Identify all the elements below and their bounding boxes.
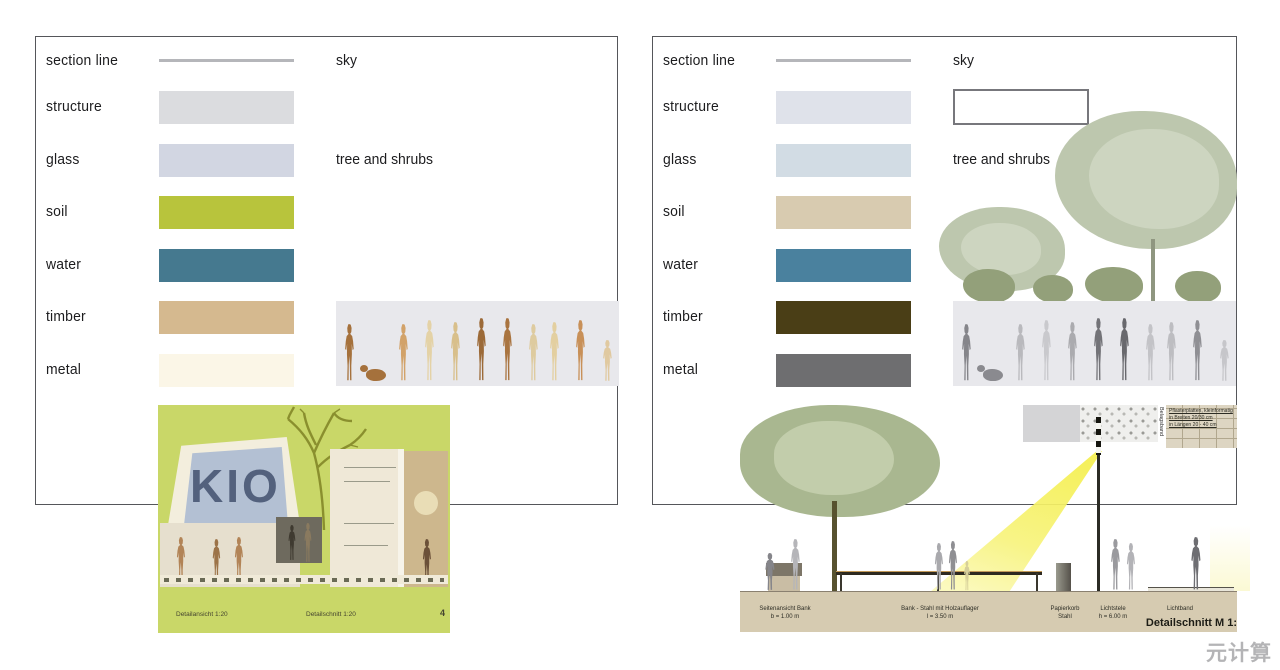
tree-canopy-light: [774, 421, 894, 495]
person-silhouette: [448, 322, 463, 382]
shrub: [1033, 275, 1073, 303]
legend-label-glass: glass: [663, 151, 697, 168]
person-silhouette: [342, 324, 357, 382]
legend-label-structure: structure: [663, 98, 719, 115]
bench-leg: [1036, 573, 1038, 591]
paving-note: Pflasterplatten, kleinformatig in Breite…: [1166, 405, 1237, 448]
paving-note-line: Pflasterplatten, kleinformatig: [1169, 408, 1230, 415]
legend-swatch-glass: [776, 144, 911, 177]
people-silhouettes-strip: [336, 301, 619, 386]
legend-label-water: water: [46, 256, 81, 273]
annotation-line: [344, 481, 390, 482]
page: section linestructureglasssoilwatertimbe…: [0, 0, 1280, 670]
legend-label-soil: soil: [663, 203, 685, 220]
legend-swatch-metal: [776, 354, 911, 387]
drawing-caption: Detailansicht 1:20: [176, 611, 228, 618]
legend-swatch-soil: [159, 196, 294, 229]
person-silhouette: [1190, 320, 1205, 382]
person-silhouette: [573, 320, 588, 382]
light-glow: [1210, 525, 1250, 591]
bench-side-base: [768, 576, 800, 591]
light-pole-stripes: [1096, 417, 1101, 455]
legend-swatch-structure: [159, 91, 294, 124]
person-silhouette: [422, 320, 437, 382]
person-silhouette: [1108, 539, 1123, 591]
legend-label-section-line: section line: [663, 52, 735, 69]
legend-label-timber: timber: [663, 308, 703, 325]
pebble-texture: [1080, 405, 1158, 442]
legend-swatch-glass: [159, 144, 294, 177]
shrub: [1085, 267, 1143, 303]
shrub: [963, 269, 1015, 303]
shrub: [1175, 271, 1221, 303]
tree-trunk: [832, 501, 837, 593]
trash-bin: [1056, 563, 1071, 591]
legend-label-timber: timber: [46, 308, 86, 325]
sky-label: sky: [953, 52, 974, 69]
section-drawing-green: KIO Detailansicht 1:20 Detailschnitt 1:2…: [158, 405, 450, 633]
trees-illustration: [939, 111, 1237, 301]
legend-swatch-structure: [776, 91, 911, 124]
legend-swatch-water: [159, 249, 294, 282]
person-silhouette: [1143, 324, 1158, 382]
legend-swatch-soil: [776, 196, 911, 229]
person-silhouette: [1065, 322, 1080, 382]
person-silhouette: [600, 340, 615, 382]
legend-label-structure: structure: [46, 98, 102, 115]
sky-label: sky: [336, 52, 357, 69]
person-silhouette: [1217, 340, 1232, 382]
tree-trunk: [1151, 239, 1155, 301]
person-silhouette: [1039, 320, 1054, 382]
legend-swatch-section-line: [776, 59, 911, 62]
legend-label-metal: metal: [663, 361, 698, 378]
person-silhouette: [1164, 322, 1179, 382]
page-number: 4: [440, 608, 445, 618]
legend-swatch-timber: [776, 301, 911, 334]
item-label-2: Bank - Stahl mit Holzauflager l = 3.50 m: [901, 605, 979, 621]
section-drawing-street: Belagsband Pflasterplatten, kleinformati…: [740, 405, 1237, 633]
person-silhouette: [1013, 324, 1028, 382]
person-silhouette: [1117, 318, 1132, 382]
drawing-title: Detailschnitt M 1:: [1030, 617, 1237, 629]
item-label-1: Seitenansicht Bank b = 1.00 m: [759, 605, 810, 621]
tree-shrubs-label: tree and shrubs: [336, 151, 433, 168]
person-silhouette: [526, 324, 541, 382]
glass-front: KIO: [184, 447, 288, 525]
person-silhouette: [959, 324, 974, 382]
people-silhouettes-strip: [953, 301, 1236, 386]
legend-label-soil: soil: [46, 203, 68, 220]
legend-swatch-water: [776, 249, 911, 282]
person-silhouette: [474, 318, 489, 382]
legend-swatch-section-line: [159, 59, 294, 62]
bench-leg: [840, 573, 842, 591]
legend-label-water: water: [663, 256, 698, 273]
legend-swatch-metal: [159, 354, 294, 387]
porthole-light: [414, 491, 438, 515]
person-silhouette: [396, 324, 411, 382]
paving-note-line: in Längen 20 - 40 cm: [1169, 422, 1230, 429]
annotation-line: [344, 467, 396, 468]
person-silhouette: [1091, 318, 1106, 382]
dog-silhouette: [366, 369, 386, 381]
person-silhouette: [1124, 543, 1138, 591]
paving-note-line: in Breiten 20/30 cm: [1169, 415, 1230, 422]
section-wall: [330, 449, 400, 587]
legend-label-metal: metal: [46, 361, 81, 378]
drawing-caption: Detailschnitt 1:20: [306, 611, 356, 618]
item-label-5: Lichtband: [1167, 605, 1193, 613]
legend-label-section-line: section line: [46, 52, 118, 69]
person-silhouette: [500, 318, 515, 382]
person-silhouette: [1188, 537, 1204, 591]
belagsband-label: Belagsband: [1156, 407, 1164, 447]
annotation-line: [344, 523, 394, 524]
annotation-line: [344, 545, 388, 546]
walkway-hatching: [160, 575, 448, 584]
light-band: [1148, 587, 1234, 591]
legend-label-glass: glass: [46, 151, 80, 168]
dog-silhouette: [983, 369, 1003, 381]
legend-swatch-timber: [159, 301, 294, 334]
doorway: [276, 517, 322, 563]
person-silhouette: [547, 322, 562, 382]
watermark: 元计算: [1206, 637, 1272, 667]
